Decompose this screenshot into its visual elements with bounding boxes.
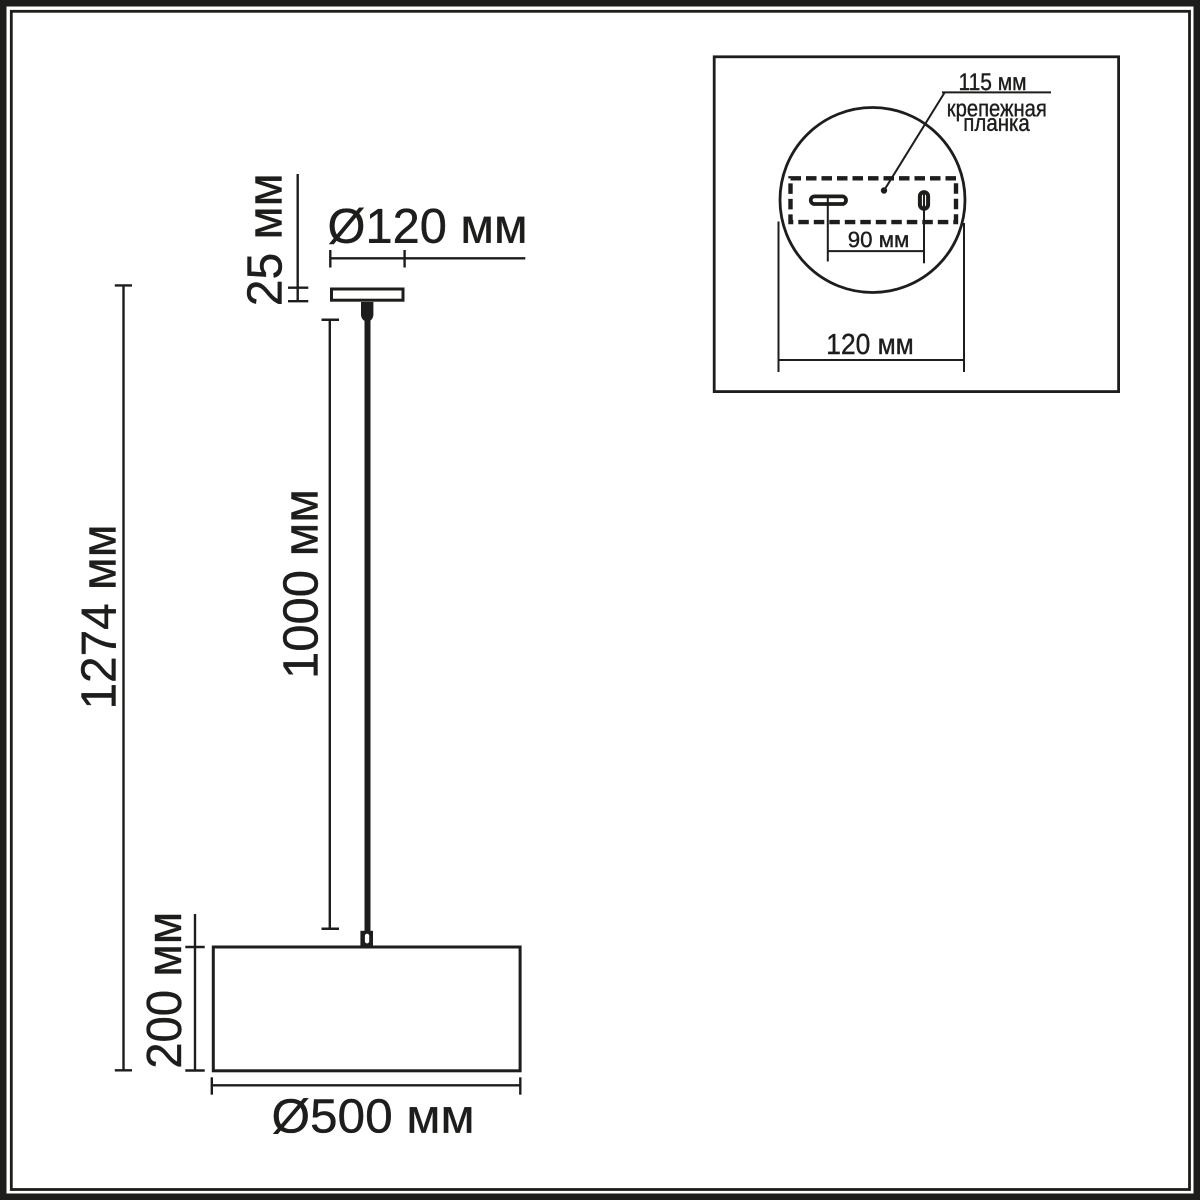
svg-text:Ø120 мм: Ø120 мм	[327, 200, 527, 254]
svg-text:Ø500 мм: Ø500 мм	[271, 1091, 474, 1144]
svg-text:200 мм: 200 мм	[138, 912, 192, 1069]
svg-text:1274 мм: 1274 мм	[72, 525, 126, 710]
svg-text:1000 мм: 1000 мм	[275, 489, 329, 679]
svg-text:115 мм: 115 мм	[958, 69, 1026, 96]
svg-text:90 мм: 90 мм	[848, 227, 910, 252]
svg-text:планка: планка	[963, 110, 1030, 136]
svg-text:120 мм: 120 мм	[826, 329, 914, 361]
svg-text:25 мм: 25 мм	[239, 173, 293, 306]
